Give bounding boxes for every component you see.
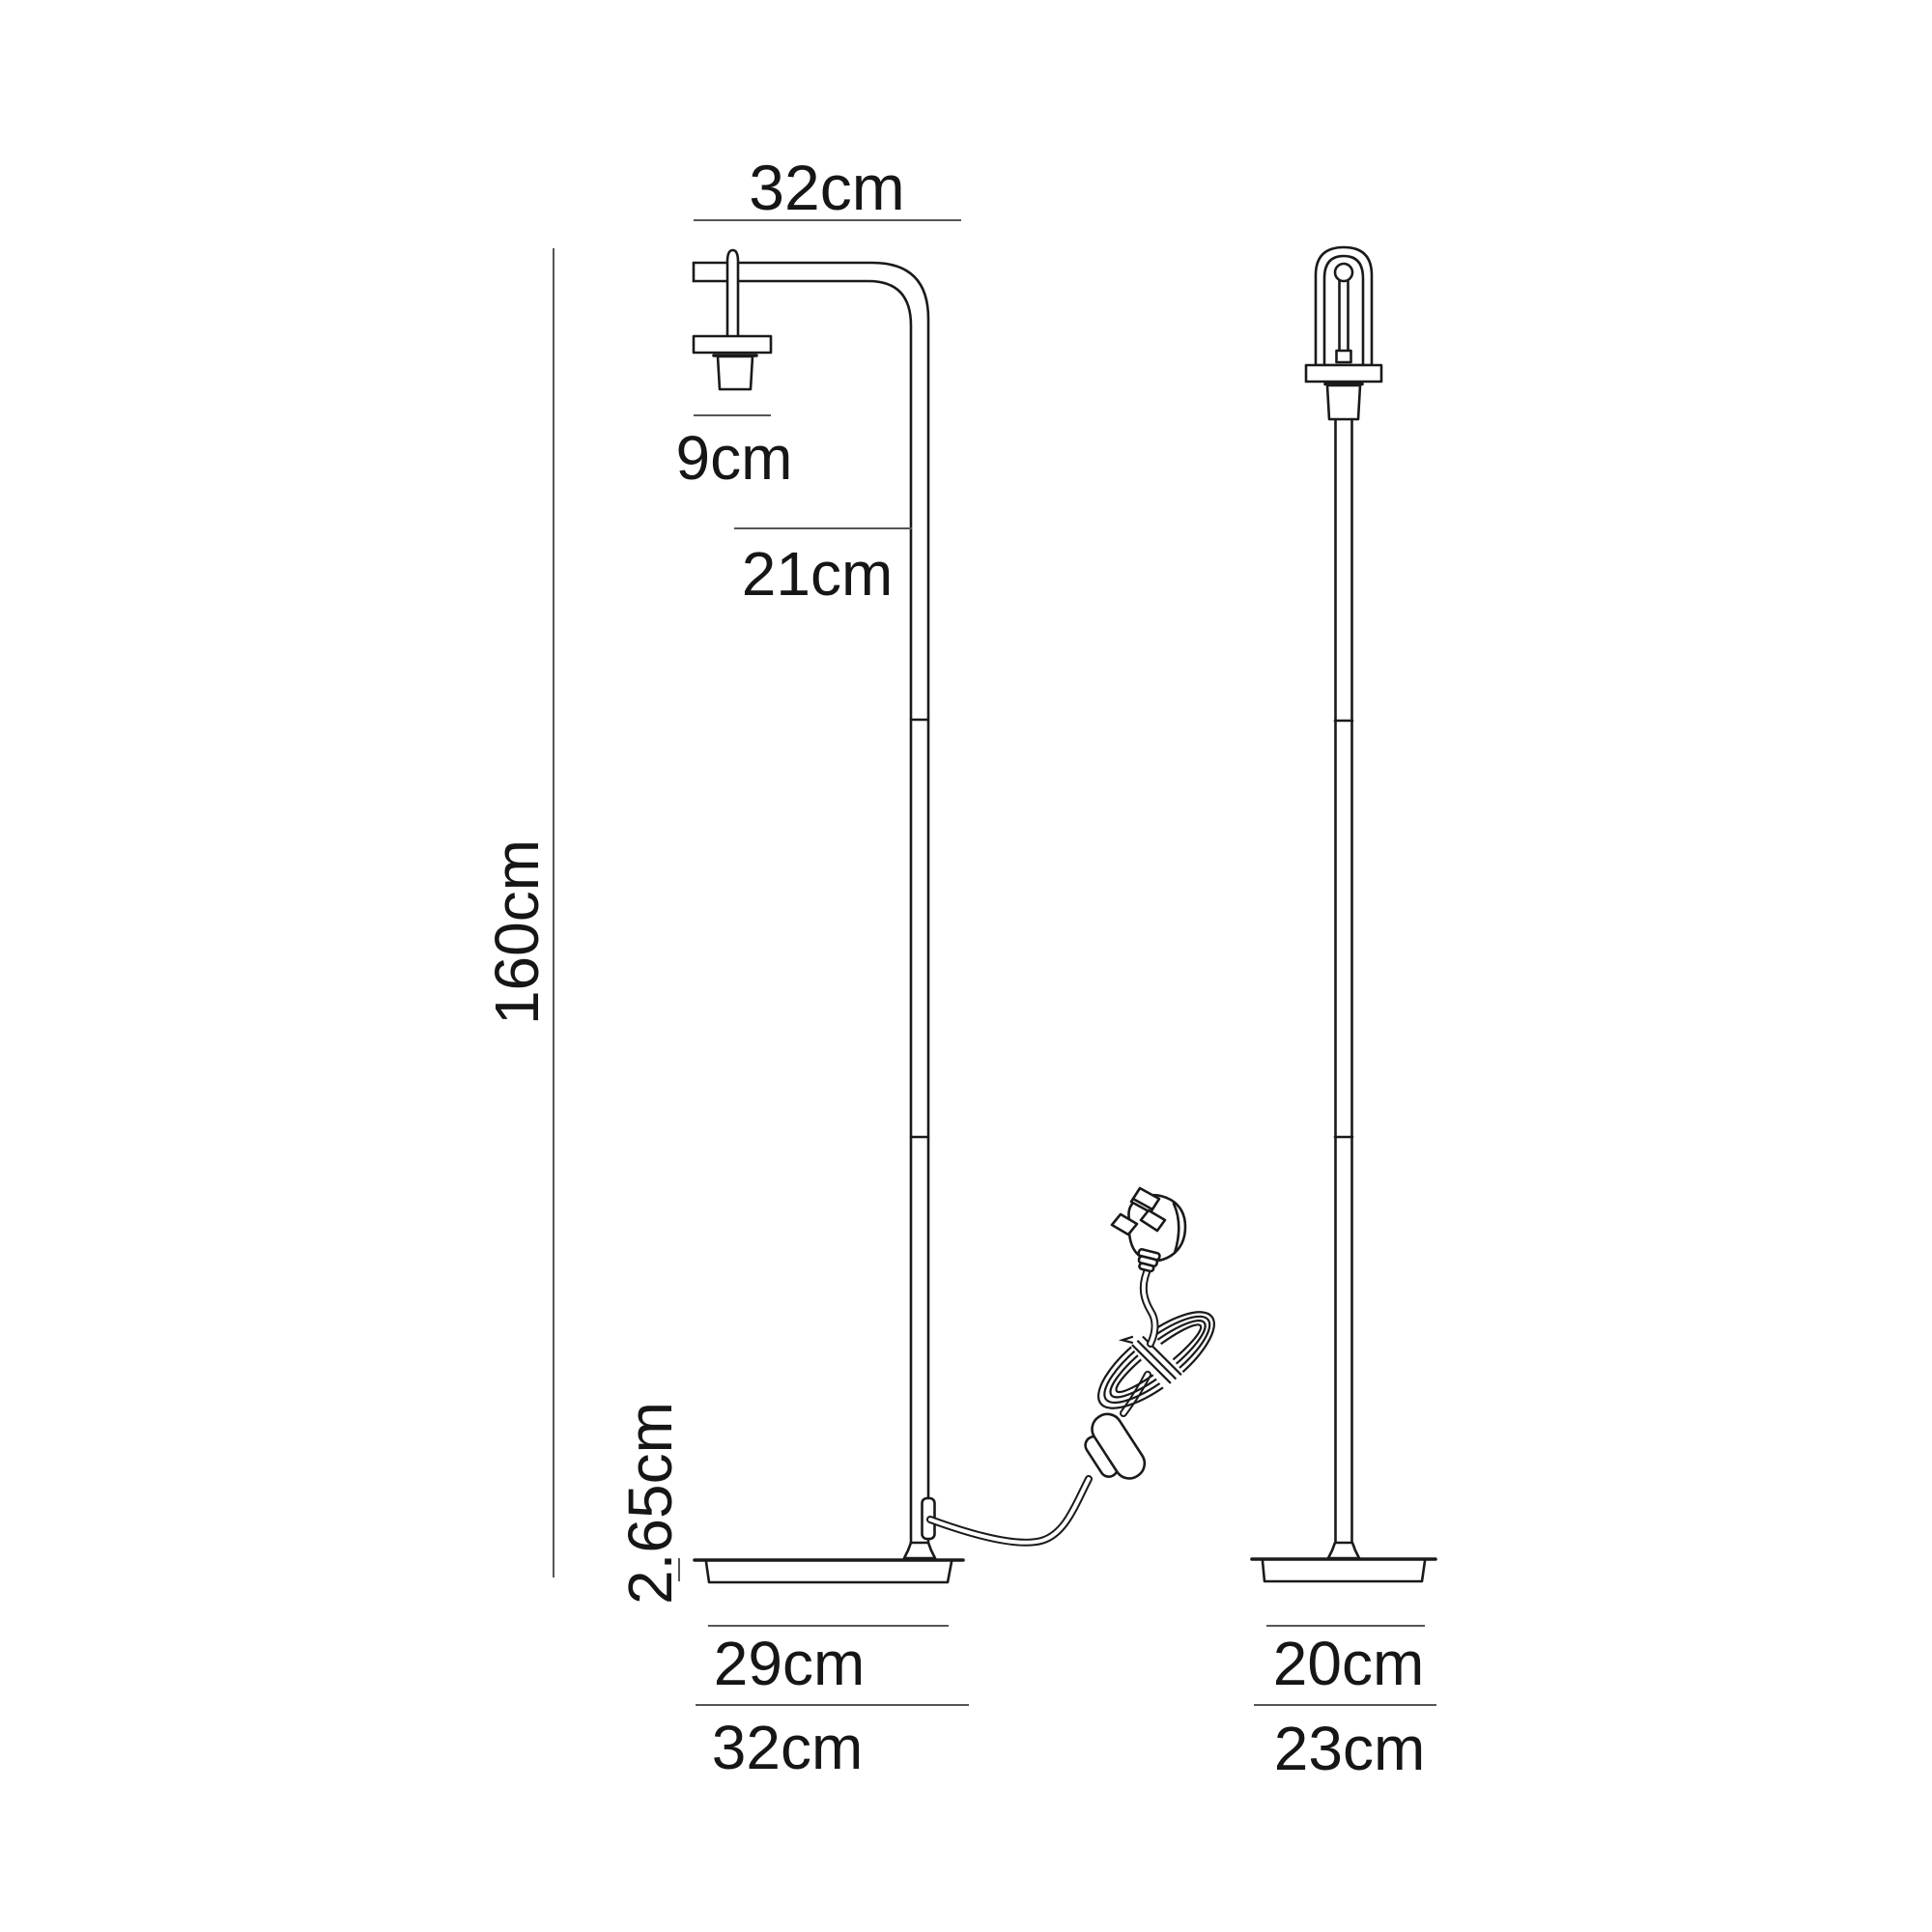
socket-cup-side — [1327, 385, 1360, 419]
cord-coil — [1078, 1288, 1230, 1426]
holder-plate-side — [1306, 365, 1381, 382]
dimension-annotations: 32cm 160cm 9cm 21cm 2.65cm 29cm 32cm 20c… — [482, 152, 1436, 1783]
cord-pole-to-switch — [930, 1479, 1089, 1543]
drawing-svg: 32cm 160cm 9cm 21cm 2.65cm 29cm 32cm 20c… — [0, 0, 1932, 1932]
pole-foot-side — [1328, 1543, 1359, 1558]
holder-plate — [694, 336, 771, 353]
pin-ball — [1335, 264, 1352, 281]
dim-label-base-outer-width: 32cm — [712, 1713, 864, 1782]
dim-label-base-inner-depth: 20cm — [1273, 1629, 1425, 1698]
bulb-pin — [727, 250, 738, 337]
base-body-front — [706, 1562, 952, 1582]
base-body-side — [1263, 1561, 1425, 1581]
dim-label-base-outer-depth: 23cm — [1274, 1714, 1426, 1783]
plug-grommet — [1135, 1249, 1160, 1273]
pin-stem-foot — [1337, 351, 1351, 362]
dim-label-arm-offset: 21cm — [742, 539, 894, 609]
lamp-dimension-drawing: 32cm 160cm 9cm 21cm 2.65cm 29cm 32cm 20c… — [0, 0, 1932, 1932]
dim-label-height: 160cm — [482, 839, 552, 1025]
dim-label-base-inner-width: 29cm — [714, 1629, 866, 1698]
cord-pole-to-switch-outline — [930, 1479, 1089, 1543]
cord-assembly — [923, 1188, 1230, 1543]
pole-foot — [904, 1543, 935, 1558]
dim-label-base-thickness: 2.65cm — [615, 1402, 685, 1605]
socket-cup — [718, 356, 753, 389]
uk-plug — [1112, 1188, 1185, 1272]
dim-label-top-width: 32cm — [749, 152, 904, 223]
side-view — [1252, 247, 1435, 1581]
dim-label-socket-width: 9cm — [676, 423, 793, 493]
